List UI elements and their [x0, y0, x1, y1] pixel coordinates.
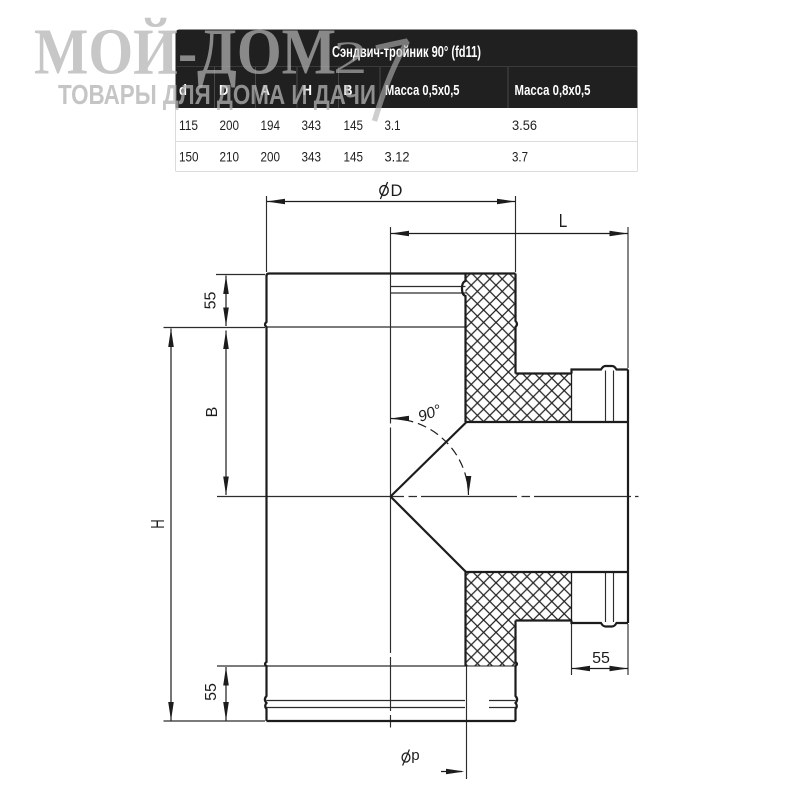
svg-text:55: 55 [203, 683, 220, 701]
svg-text:3.1: 3.1 [385, 117, 401, 133]
svg-text:B: B [204, 407, 221, 418]
svg-text:150: 150 [179, 149, 199, 165]
svg-text:200: 200 [220, 117, 240, 133]
svg-text:2: 2 [333, 32, 368, 84]
svg-text:d: d [411, 748, 419, 765]
svg-text:МОЙ-ДОМ: МОЙ-ДОМ [34, 16, 336, 89]
svg-text:343: 343 [302, 149, 322, 165]
svg-text:145: 145 [344, 149, 364, 165]
svg-text:200: 200 [261, 149, 281, 165]
svg-text:115: 115 [179, 117, 198, 133]
svg-text:210: 210 [220, 149, 240, 165]
svg-text:Масса 0,8x0,5: Масса 0,8x0,5 [515, 82, 591, 99]
svg-text:D: D [391, 182, 403, 200]
svg-text:55: 55 [203, 292, 220, 310]
svg-text:3.7: 3.7 [512, 149, 528, 165]
svg-text:55: 55 [592, 650, 610, 667]
svg-text:343: 343 [302, 117, 322, 133]
svg-text:145: 145 [344, 117, 364, 133]
svg-text:3.12: 3.12 [385, 149, 410, 165]
svg-text:Масса 0,5x0,5: Масса 0,5x0,5 [385, 82, 460, 99]
svg-text:L: L [559, 211, 568, 231]
svg-text:3.56: 3.56 [512, 117, 537, 133]
svg-text:H: H [147, 519, 168, 529]
svg-text:194: 194 [261, 117, 281, 133]
svg-text:ТОВАРЫ ДЛЯ ДОМА И ДАЧИ: ТОВАРЫ ДЛЯ ДОМА И ДАЧИ [58, 79, 376, 110]
